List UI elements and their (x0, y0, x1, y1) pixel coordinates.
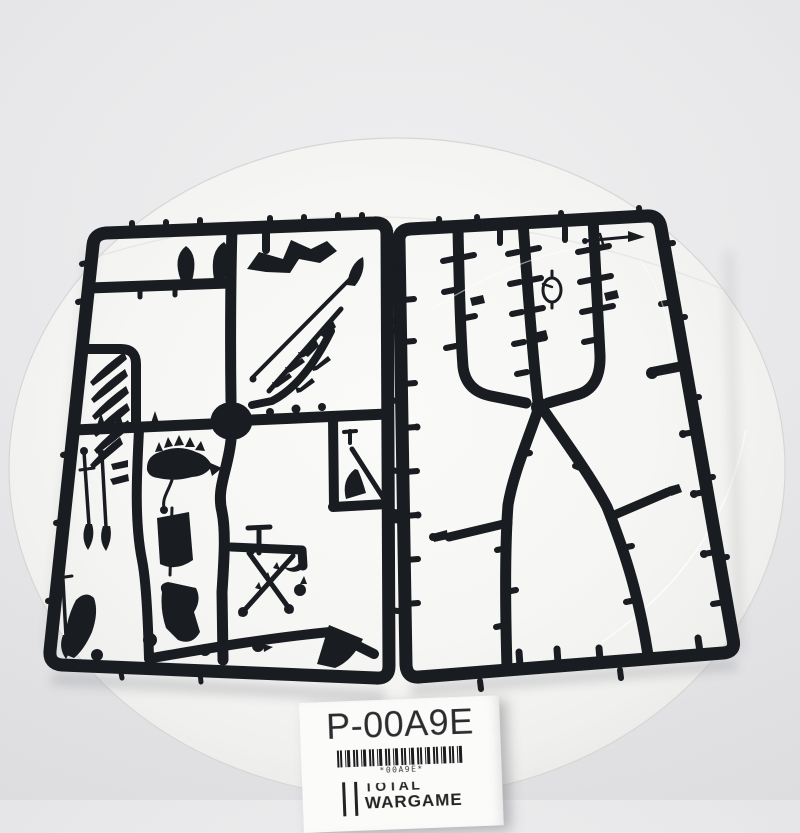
product-label: P-00A9E *00A9E* TOTAL WARGAME (299, 695, 504, 833)
banner-part (157, 512, 193, 567)
part-code: P-00A9E (299, 702, 500, 746)
double-bar-logo-icon (342, 782, 358, 817)
brand-logo: TOTAL WARGAME (302, 774, 503, 818)
photo-canvas (0, 0, 800, 800)
round-base-part (211, 402, 253, 440)
